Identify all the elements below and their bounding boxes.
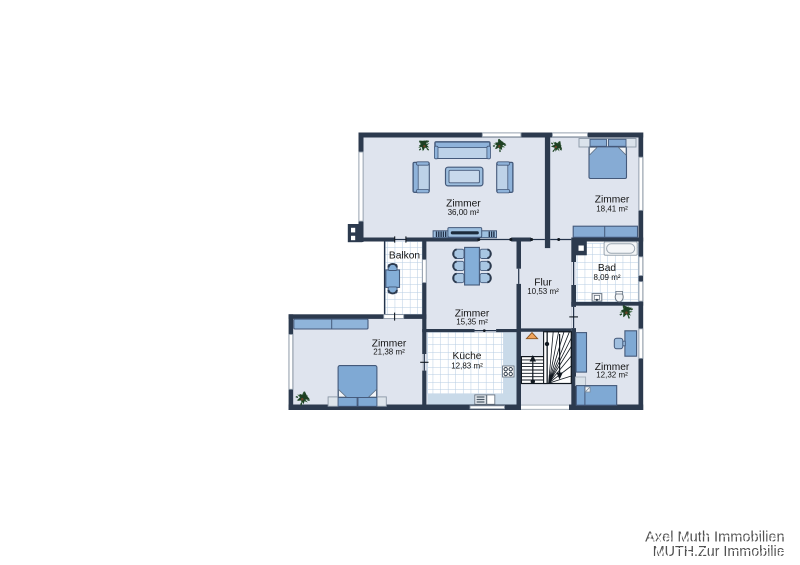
svg-text:21,38 m²: 21,38 m² xyxy=(373,348,405,357)
svg-text:12,83 m²: 12,83 m² xyxy=(451,361,483,370)
svg-text:36,00 m²: 36,00 m² xyxy=(448,208,480,217)
svg-text:Balkon: Balkon xyxy=(389,251,420,262)
svg-text:12,32 m²: 12,32 m² xyxy=(596,371,628,380)
svg-text:MUTH.Zur Immobilie: MUTH.Zur Immobilie xyxy=(655,546,787,562)
svg-text:15,35 m²: 15,35 m² xyxy=(456,317,488,326)
svg-text:Küche: Küche xyxy=(453,351,482,362)
svg-text:18,41 m²: 18,41 m² xyxy=(596,204,628,213)
svg-text:10,53 m²: 10,53 m² xyxy=(527,287,559,296)
svg-text:8,09 m²: 8,09 m² xyxy=(593,273,620,282)
